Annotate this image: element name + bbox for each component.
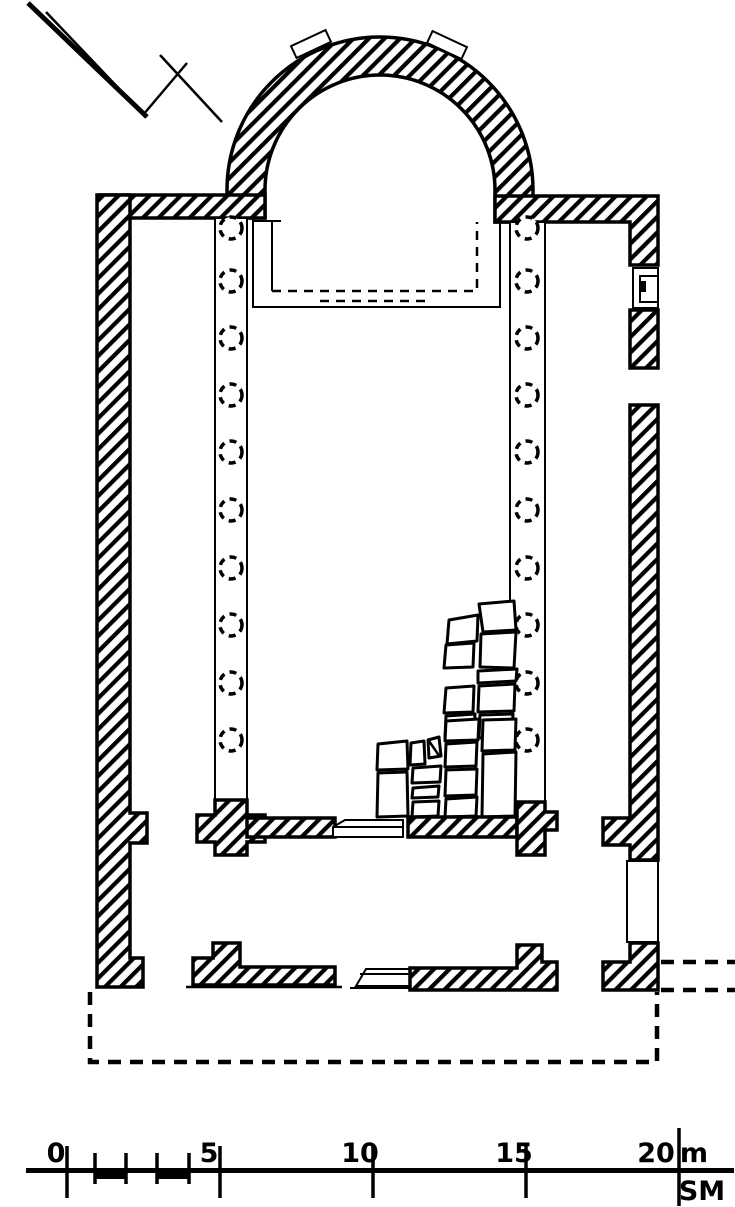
west-wall	[97, 195, 147, 987]
narthex-wall-right	[410, 945, 557, 990]
column-base	[516, 270, 538, 292]
east-wall-segment-4	[603, 943, 658, 990]
east-wall	[603, 268, 658, 990]
stone	[478, 669, 517, 683]
stone	[445, 797, 477, 817]
stone	[377, 741, 408, 770]
column-base	[516, 384, 538, 406]
chancel-wall-right	[408, 817, 517, 837]
column-base	[220, 614, 242, 636]
chancel-wall-left	[247, 818, 335, 837]
scale-label-5: 5	[200, 1138, 219, 1169]
stone	[482, 719, 516, 751]
chancel-pier-right	[517, 802, 557, 855]
column-base	[516, 614, 538, 636]
scale-unit-label: m	[680, 1138, 708, 1169]
east-wall-segment-3	[603, 405, 658, 860]
scale-label-0: 0	[47, 1138, 66, 1169]
narthex-wall	[186, 943, 557, 990]
scale-bar: 0 5 10 15 20 m SM	[26, 1128, 734, 1207]
bema-outline	[253, 218, 500, 307]
column-base	[220, 441, 242, 463]
stone	[412, 766, 441, 783]
east-wall-segment-2	[630, 310, 658, 368]
column-base	[220, 729, 242, 751]
stone	[410, 741, 425, 765]
stone	[412, 801, 439, 817]
column-base	[220, 384, 242, 406]
stone	[478, 684, 515, 712]
stone	[445, 769, 477, 796]
plan-sheet: 0 5 10 15 20 m SM	[0, 0, 735, 1207]
stone	[445, 742, 477, 767]
column-base	[516, 499, 538, 521]
stone	[412, 786, 439, 798]
column-base	[220, 217, 242, 239]
narthex-wall-left	[193, 943, 335, 985]
column-base	[220, 672, 242, 694]
scale-bar-line	[26, 1168, 734, 1173]
column-base	[220, 499, 242, 521]
scale-label-10: 10	[341, 1138, 379, 1169]
column-base	[516, 672, 538, 694]
stone	[480, 632, 516, 668]
column-base	[516, 729, 538, 751]
north-arrow-icon	[28, 3, 222, 122]
column-base	[220, 557, 242, 579]
east-wall-opening	[627, 861, 658, 942]
stone	[445, 719, 479, 741]
apse-wall	[227, 37, 533, 222]
stone	[482, 752, 516, 817]
column-base	[220, 270, 242, 292]
stone	[444, 686, 474, 713]
scale-label-15: 15	[495, 1138, 533, 1169]
column-base	[516, 327, 538, 349]
stone	[377, 772, 408, 817]
stone	[447, 615, 478, 644]
chancel-threshold	[333, 820, 403, 837]
stone	[444, 643, 474, 668]
scale-bar-block	[157, 1173, 189, 1179]
surveyor-initials: SM	[679, 1176, 725, 1207]
church-floor-plan: 0 5 10 15 20 m SM	[0, 0, 735, 1207]
column-base	[220, 327, 242, 349]
column-base	[516, 557, 538, 579]
column-base	[516, 217, 538, 239]
stone	[479, 601, 516, 632]
east-door-pivot	[639, 281, 646, 292]
scale-label-20: 20	[637, 1138, 675, 1169]
scale-bar-block	[95, 1173, 126, 1179]
column-base	[516, 441, 538, 463]
rubble-stones	[377, 601, 517, 817]
